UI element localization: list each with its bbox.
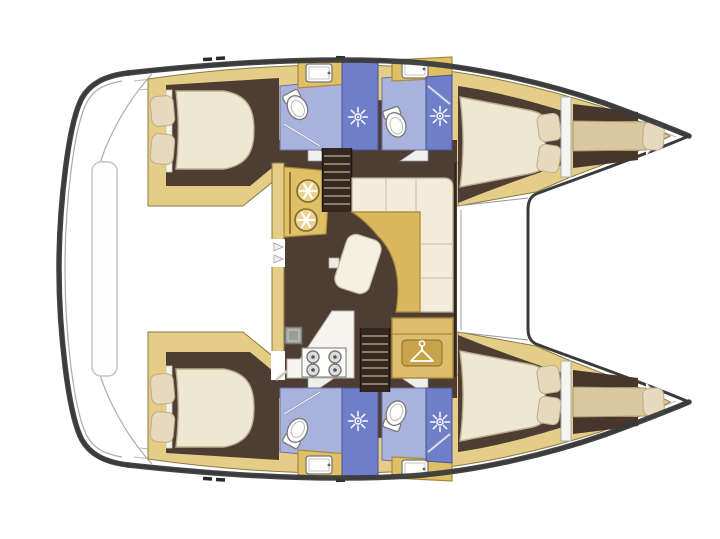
- table-leg: [329, 258, 339, 268]
- cockpit-bench: [92, 162, 117, 376]
- catamaran-floor-plan: [0, 0, 720, 539]
- salon-aft-wall: [272, 163, 284, 378]
- door-opening: [271, 239, 285, 267]
- stairs-port-hull: [322, 148, 352, 212]
- salon: [271, 148, 457, 392]
- wardrobe: [392, 318, 453, 378]
- stairs-starboard-hull: [360, 328, 390, 392]
